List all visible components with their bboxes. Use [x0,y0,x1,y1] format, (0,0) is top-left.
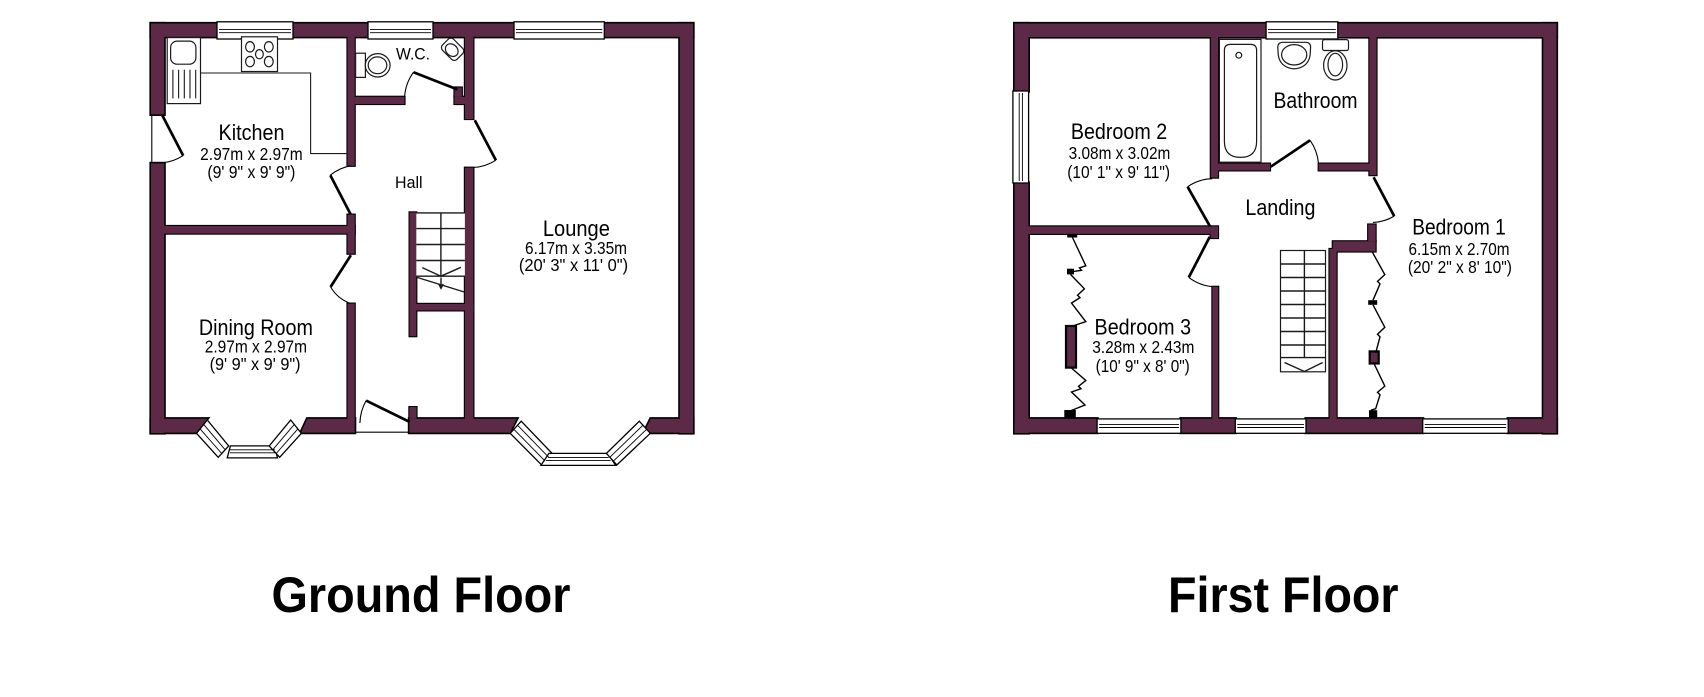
svg-text:First Floor: First Floor [1168,567,1399,623]
svg-text:Kitchen: Kitchen [219,120,285,145]
svg-text:Bedroom 2: Bedroom 2 [1071,119,1167,144]
svg-text:(20' 2" x 8' 10"): (20' 2" x 8' 10") [1408,257,1512,277]
svg-text:2.97m x 2.97m: 2.97m x 2.97m [200,144,303,164]
svg-text:Bedroom 3: Bedroom 3 [1095,314,1192,339]
svg-text:Hall: Hall [395,173,423,192]
svg-text:Ground Floor: Ground Floor [272,567,571,623]
svg-text:W.C.: W.C. [396,46,430,64]
svg-text:6.15m x 2.70m: 6.15m x 2.70m [1408,239,1509,259]
svg-text:(20' 3" x 11' 0"): (20' 3" x 11' 0") [519,255,628,275]
svg-text:3.28m x 2.43m: 3.28m x 2.43m [1092,337,1194,357]
svg-text:Bedroom 1: Bedroom 1 [1412,215,1506,240]
svg-text:(9' 9" x 9' 9"): (9' 9" x 9' 9") [207,162,295,182]
svg-text:Landing: Landing [1245,195,1315,220]
svg-text:3.08m x 3.02m: 3.08m x 3.02m [1069,143,1171,163]
svg-text:Bathroom: Bathroom [1274,88,1358,113]
svg-text:(10' 1" x 9' 11"): (10' 1" x 9' 11") [1067,162,1170,182]
svg-text:(9' 9" x 9' 9"): (9' 9" x 9' 9") [210,354,301,374]
svg-text:(10' 9" x 8' 0"): (10' 9" x 8' 0") [1096,356,1190,376]
